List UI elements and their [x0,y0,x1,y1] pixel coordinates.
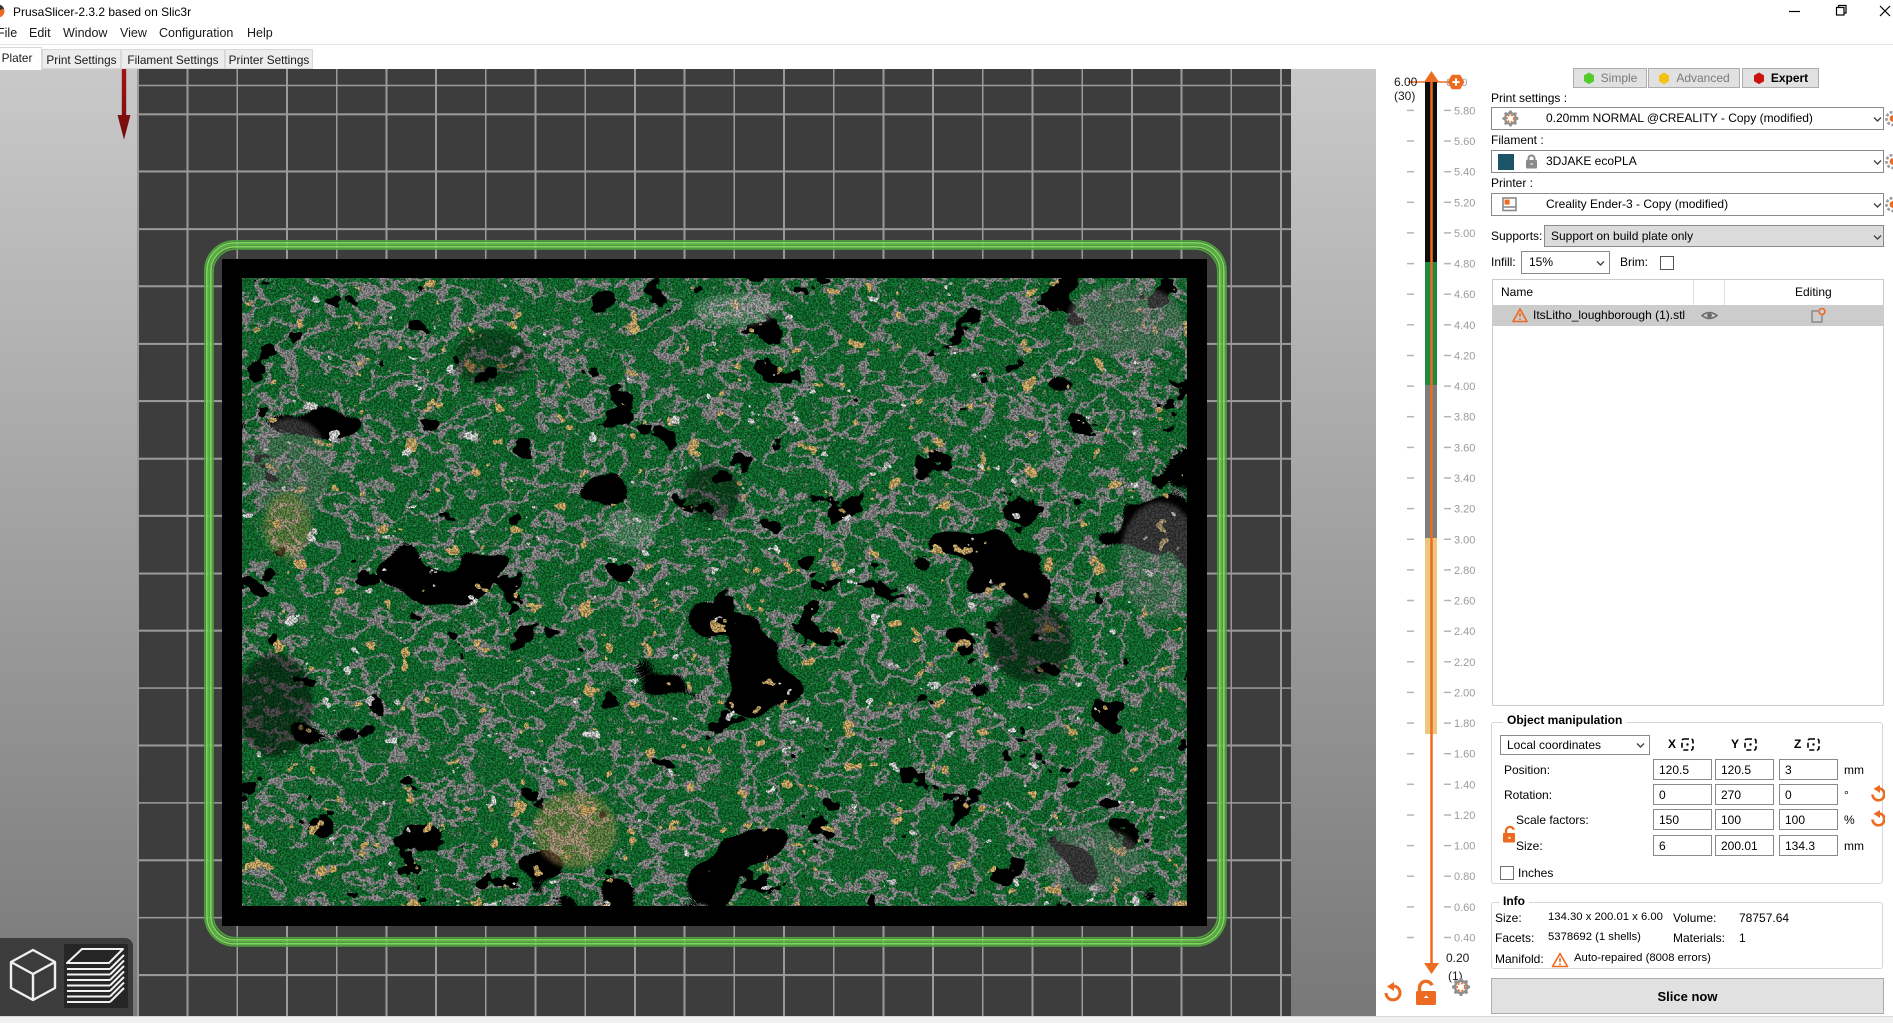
svg-text:4.80: 4.80 [1454,259,1475,271]
svg-text:2.80: 2.80 [1454,565,1475,577]
svg-text:6.00: 6.00 [1394,75,1418,89]
svg-text:2.60: 2.60 [1454,596,1475,608]
svg-text:1.60: 1.60 [1454,749,1475,761]
svg-text:1.00: 1.00 [1454,841,1475,853]
svg-text:3.60: 3.60 [1454,442,1475,454]
svg-text:4.20: 4.20 [1454,351,1475,363]
svg-text:2.20: 2.20 [1454,657,1475,669]
svg-text:0.20: 0.20 [1446,951,1470,965]
svg-text:5.20: 5.20 [1454,197,1475,209]
svg-text:1.40: 1.40 [1454,779,1475,791]
svg-text:5.80: 5.80 [1454,105,1475,117]
svg-text:2.40: 2.40 [1454,626,1475,638]
svg-text:4.00: 4.00 [1454,381,1475,393]
svg-text:5.60: 5.60 [1454,136,1475,148]
svg-text:4.60: 4.60 [1454,289,1475,301]
svg-text:1.80: 1.80 [1454,718,1475,730]
svg-text:3.00: 3.00 [1454,534,1475,546]
svg-text:3.80: 3.80 [1454,412,1475,424]
svg-text:1.20: 1.20 [1454,810,1475,822]
svg-text:0.80: 0.80 [1454,871,1475,883]
svg-text:(30): (30) [1394,89,1415,103]
svg-text:3.20: 3.20 [1454,504,1475,516]
svg-text:2.00: 2.00 [1454,687,1475,699]
svg-text:5.00: 5.00 [1454,228,1475,240]
svg-text:5.40: 5.40 [1454,167,1475,179]
svg-text:3.40: 3.40 [1454,473,1475,485]
svg-text:4.40: 4.40 [1454,320,1475,332]
svg-text:0.40: 0.40 [1454,933,1475,945]
svg-text:0.60: 0.60 [1454,902,1475,914]
